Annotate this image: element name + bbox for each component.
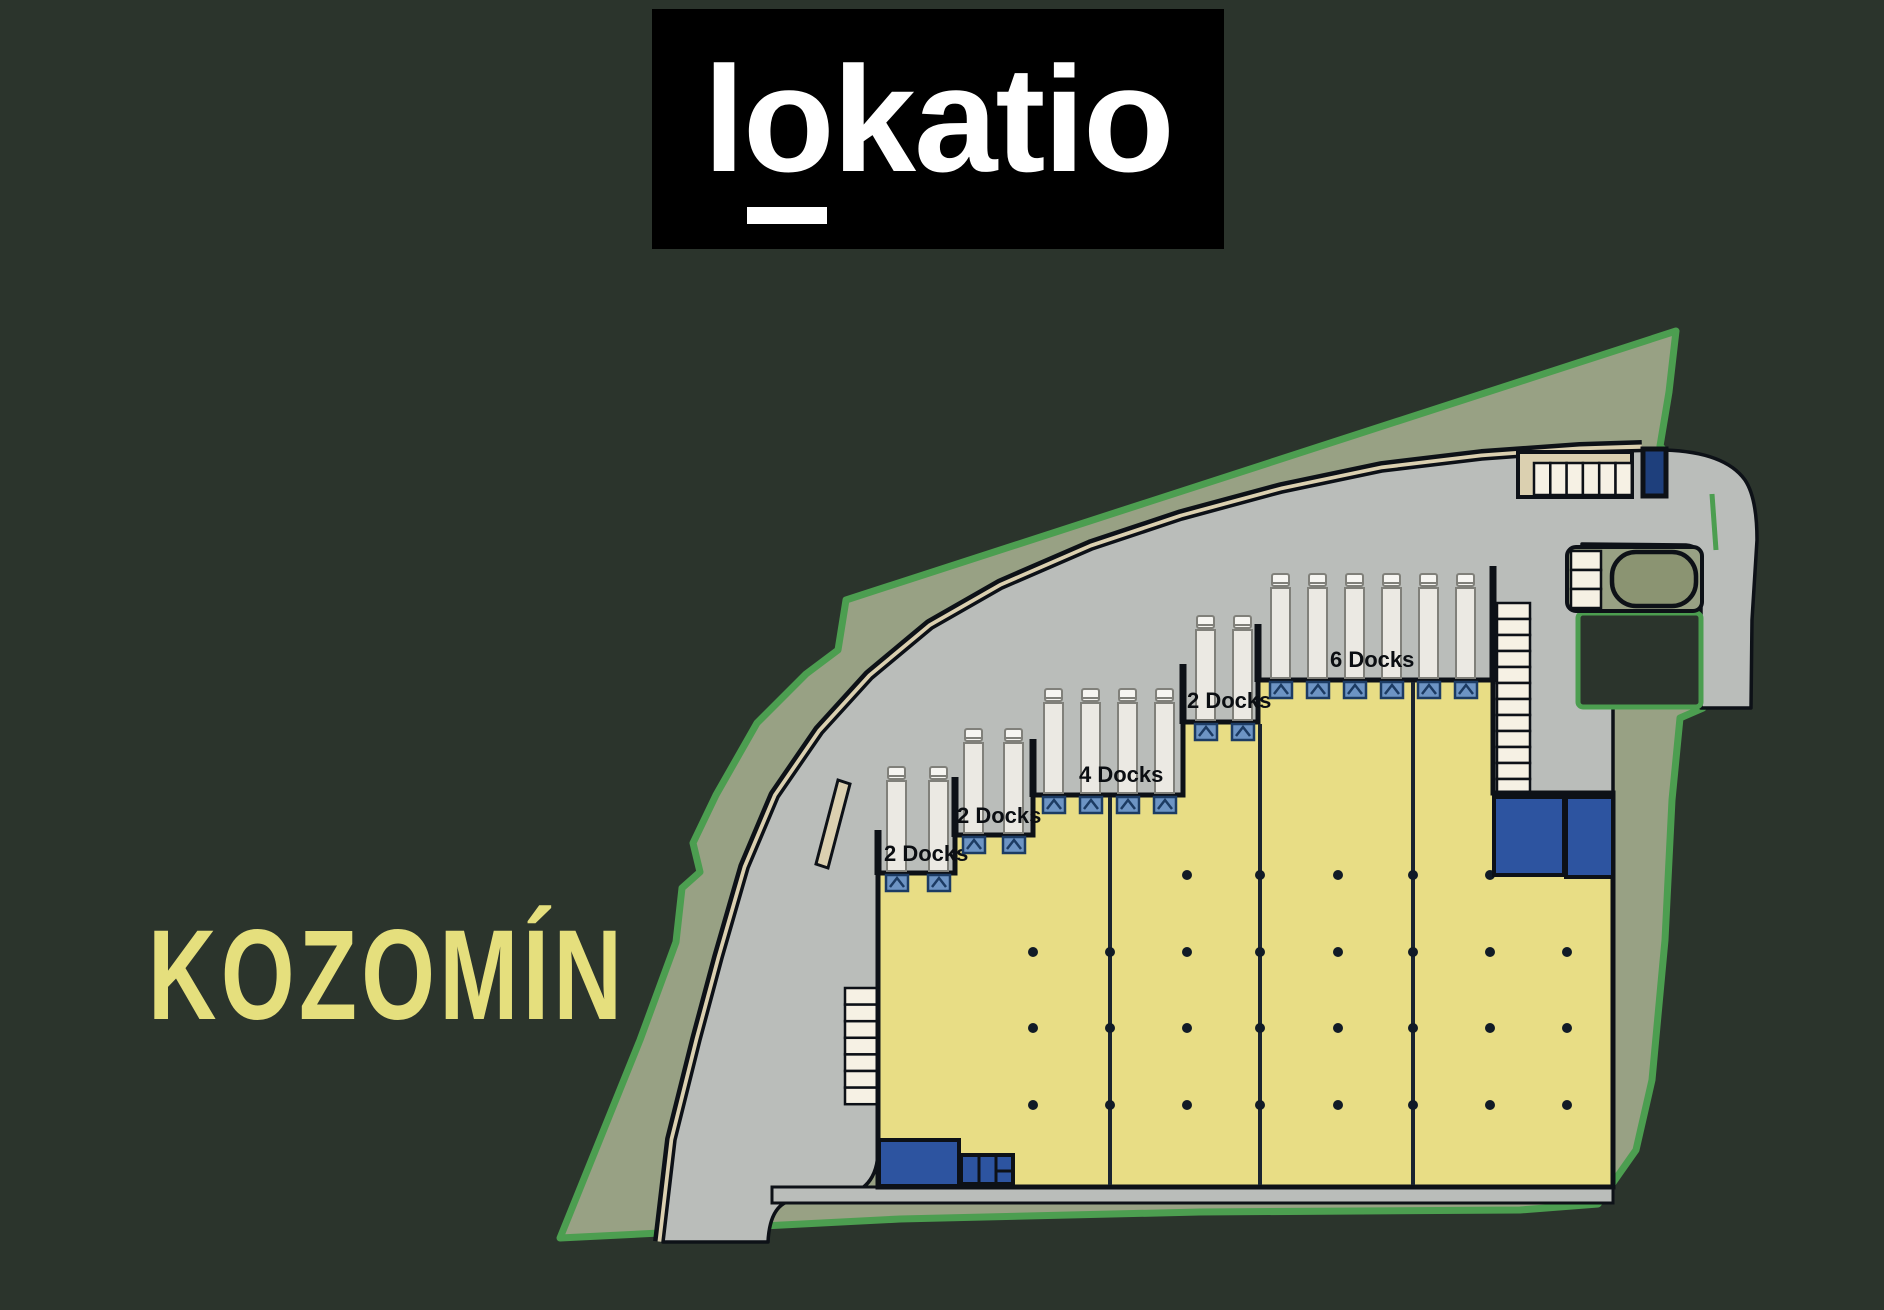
parking-stall [1497, 731, 1530, 747]
parking-stall [845, 1038, 877, 1055]
dock-door [1232, 724, 1254, 740]
column-dot [1255, 1100, 1265, 1110]
parking-stall [1567, 463, 1583, 495]
dock-door [1455, 682, 1477, 698]
parking-stall [1571, 589, 1601, 608]
parking-stall [1571, 551, 1601, 570]
column-dot [1182, 870, 1192, 880]
column-dot [1028, 1023, 1038, 1033]
utility-block [1643, 449, 1666, 496]
column-dot [1255, 1023, 1265, 1033]
parking-stall [1497, 619, 1530, 635]
column-dot [1333, 947, 1343, 957]
landscape-cutout [1578, 613, 1701, 707]
column-dot [1485, 1100, 1495, 1110]
column-dot [1485, 1023, 1495, 1033]
truck [1456, 574, 1475, 678]
parking-stall [1497, 699, 1530, 715]
column-dot [1028, 947, 1038, 957]
dock-count-label: 2 Docks [957, 803, 1041, 828]
parking-stall [1497, 667, 1530, 683]
dock-count-label: 6 Docks [1330, 647, 1414, 672]
column-dot [1105, 1023, 1115, 1033]
column-dot [1255, 870, 1265, 880]
column-dot [1485, 947, 1495, 957]
parking-stall [1497, 763, 1530, 779]
column-dot [1562, 1100, 1572, 1110]
east-parking-column [1497, 603, 1530, 795]
parking-stall [845, 1071, 877, 1088]
column-dot [1408, 1100, 1418, 1110]
truck [1308, 574, 1327, 678]
column-dot [1028, 1100, 1038, 1110]
page: lokatio KOZOMÍN [0, 0, 1884, 1310]
dock-door [1003, 837, 1025, 853]
column-dot [1255, 947, 1265, 957]
dock-count-label: 2 Docks [884, 841, 968, 866]
dock-door [963, 837, 985, 853]
dock-door [1270, 682, 1292, 698]
truck [1271, 574, 1290, 678]
parking-stall [1534, 463, 1550, 495]
column-dot [1182, 1100, 1192, 1110]
parking-stall [845, 1054, 877, 1071]
dock-door [1080, 797, 1102, 813]
dock-door [1418, 682, 1440, 698]
parking-stall [1497, 683, 1530, 699]
dock-door [1043, 797, 1065, 813]
parking-stall [1497, 603, 1530, 619]
dock-count-label: 4 Docks [1079, 762, 1163, 787]
column-dot [1408, 947, 1418, 957]
dock-door [928, 875, 950, 891]
parking-stall [845, 1088, 877, 1105]
traffic-island [1567, 547, 1702, 611]
column-dot [1105, 947, 1115, 957]
parking-stall [1497, 635, 1530, 651]
site-plan: 2 Docks2 Docks4 Docks2 Docks6 Docks [0, 0, 1884, 1310]
column-dot [1333, 870, 1343, 880]
dock-door [886, 875, 908, 891]
column-dot [1562, 1023, 1572, 1033]
parking-stall [1616, 463, 1632, 495]
column-dot [1182, 1023, 1192, 1033]
parking-stall [1497, 651, 1530, 667]
column-dot [1562, 947, 1572, 957]
column-dot [1333, 1023, 1343, 1033]
parking-stall [1571, 570, 1601, 589]
parking-stall [1497, 715, 1530, 731]
parking-stall [845, 1005, 877, 1022]
parking-stall [1583, 463, 1599, 495]
column-dot [1105, 1100, 1115, 1110]
column-dot [1408, 1023, 1418, 1033]
parking-stall [1550, 463, 1566, 495]
column-dot [1333, 1100, 1343, 1110]
parking-stall [1599, 463, 1615, 495]
column-dot [1182, 947, 1192, 957]
upper-parking-row [1518, 452, 1632, 497]
dock-door [1154, 797, 1176, 813]
parking-stall [845, 988, 877, 1005]
dock-count-label: 2 Docks [1187, 688, 1271, 713]
column-dot [1408, 870, 1418, 880]
dock-door [1381, 682, 1403, 698]
parking-stall [845, 1021, 877, 1038]
truck [1419, 574, 1438, 678]
dock-door [1344, 682, 1366, 698]
dock-door [1307, 682, 1329, 698]
west-parking-column [845, 988, 877, 1104]
dock-door [1195, 724, 1217, 740]
truck [1044, 689, 1063, 793]
parking-stall [1497, 747, 1530, 763]
dock-door [1117, 797, 1139, 813]
